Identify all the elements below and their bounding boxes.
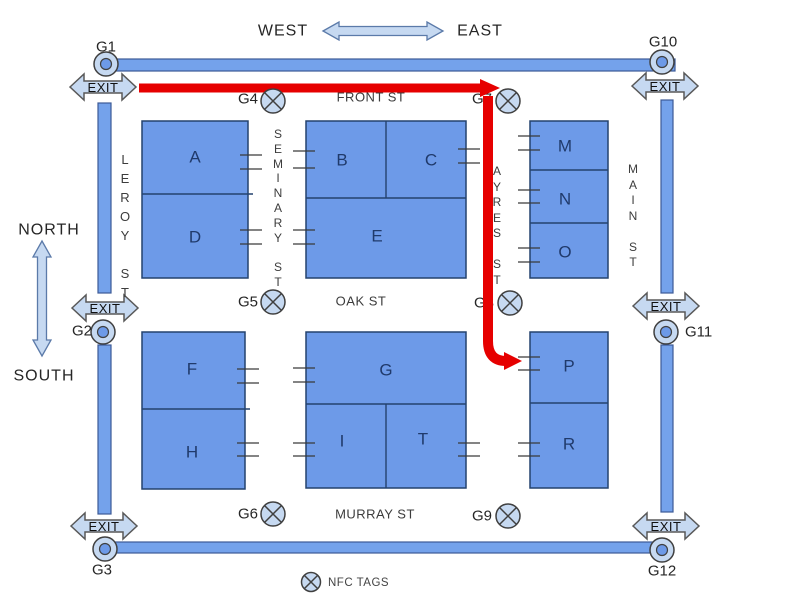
block-label-T: T	[418, 430, 428, 449]
street-bar-bottom	[112, 542, 655, 553]
exit-label: EXIT	[650, 79, 681, 94]
block-label-N: N	[559, 190, 571, 209]
street-label-oak: OAK ST	[336, 294, 387, 309]
gate-label-G12: G12	[648, 563, 676, 580]
nfc-tag-icon-G5	[261, 290, 285, 314]
gate-node-inner-dot	[661, 327, 672, 338]
gate-label-G5: G5	[238, 294, 258, 311]
route-arrowhead-to-P	[504, 352, 522, 370]
gate-label-G6: G6	[238, 506, 258, 523]
building-block-group	[142, 332, 245, 489]
exit-arrow-1: EXIT	[70, 74, 136, 100]
gate-node-inner-dot	[657, 545, 668, 556]
nfc-tag-icon-G6	[261, 502, 285, 526]
block-label-F: F	[187, 360, 197, 379]
block-label-C: C	[425, 151, 437, 170]
block-label-R: R	[563, 435, 575, 454]
nfc-tag-icon-G7	[496, 89, 520, 113]
block-label-O: O	[558, 243, 571, 262]
gate-node-inner-dot	[98, 327, 109, 338]
gate-node-G11	[654, 320, 678, 344]
compass-label-north: NORTH	[18, 222, 80, 239]
gate-label-G4: G4	[238, 91, 258, 108]
exit-arrow-2: EXIT	[632, 73, 698, 99]
block-label-P: P	[563, 357, 574, 376]
exit-arrow-6: EXIT	[633, 513, 699, 539]
block-label-D: D	[189, 228, 201, 247]
gate-node-inner-dot	[657, 57, 668, 68]
block-label-H: H	[186, 443, 198, 462]
block-label-E: E	[371, 227, 382, 246]
gate-node-G2	[91, 320, 115, 344]
gate-label-G3: G3	[92, 562, 112, 579]
gate-node-G3	[93, 537, 117, 561]
building-block-group	[530, 332, 608, 488]
block-label-A: A	[189, 148, 201, 167]
street-bar-left-lower	[98, 345, 111, 514]
exit-label: EXIT	[651, 299, 682, 314]
exit-arrow-4: EXIT	[633, 293, 699, 319]
gates-layer: G1G2G3G10G11G12	[72, 34, 712, 580]
block-label-M: M	[558, 137, 572, 156]
street-bar-left-upper	[98, 103, 111, 293]
street-bar-top	[110, 59, 675, 71]
street-bar-right-upper	[661, 100, 673, 293]
nfc-tag-icon-G9	[496, 504, 520, 528]
exit-label: EXIT	[90, 301, 121, 316]
street-bar-right-lower	[661, 345, 673, 512]
exit-label: EXIT	[651, 519, 682, 534]
compass-label-west: WEST	[258, 23, 308, 40]
gate-label-G10: G10	[649, 34, 677, 51]
gate-label-G2: G2	[72, 323, 92, 340]
exit-label: EXIT	[88, 80, 119, 95]
gate-label-G9: G9	[472, 508, 492, 525]
street-label-main: M A I N S T	[628, 162, 638, 271]
block-label-G: G	[379, 361, 392, 380]
exit-arrow-5: EXIT	[71, 513, 137, 539]
gate-node-G1	[94, 52, 118, 76]
gate-node-inner-dot	[100, 544, 111, 555]
compass-label-south: SOUTH	[14, 368, 75, 385]
street-label-seminary: S E M I N A R Y S T	[273, 127, 283, 290]
facility-map: ADBCEMNOFHGITPR FRONT STOAK STMURRAY STG…	[0, 0, 800, 600]
building-block-group	[142, 121, 248, 278]
gate-node-G12	[650, 538, 674, 562]
legend-nfc-label: NFC TAGS	[328, 577, 389, 589]
legend-layer: NFC TAGS	[302, 573, 390, 592]
street-label-ayres: A Y R E S S T	[493, 164, 502, 288]
compass-label-east: EAST	[457, 23, 503, 40]
nfc-tag-icon-G4	[261, 89, 285, 113]
street-label-murray: MURRAY ST	[335, 507, 415, 522]
nfc-tag-icon-G8	[498, 291, 522, 315]
north-south-arrow-icon	[33, 241, 51, 356]
gate-node-inner-dot	[101, 59, 112, 70]
gate-label-G1: G1	[96, 39, 116, 56]
street-label-leroy: L E R O Y S T	[120, 150, 130, 302]
gate-node-G10	[650, 50, 674, 74]
legend-nfc-tag-icon	[302, 573, 321, 592]
block-label-B: B	[336, 151, 347, 170]
exit-label: EXIT	[89, 519, 120, 534]
west-east-arrow-icon	[323, 22, 443, 40]
block-label-I: I	[340, 432, 345, 451]
gate-label-G11: G11	[685, 324, 712, 341]
